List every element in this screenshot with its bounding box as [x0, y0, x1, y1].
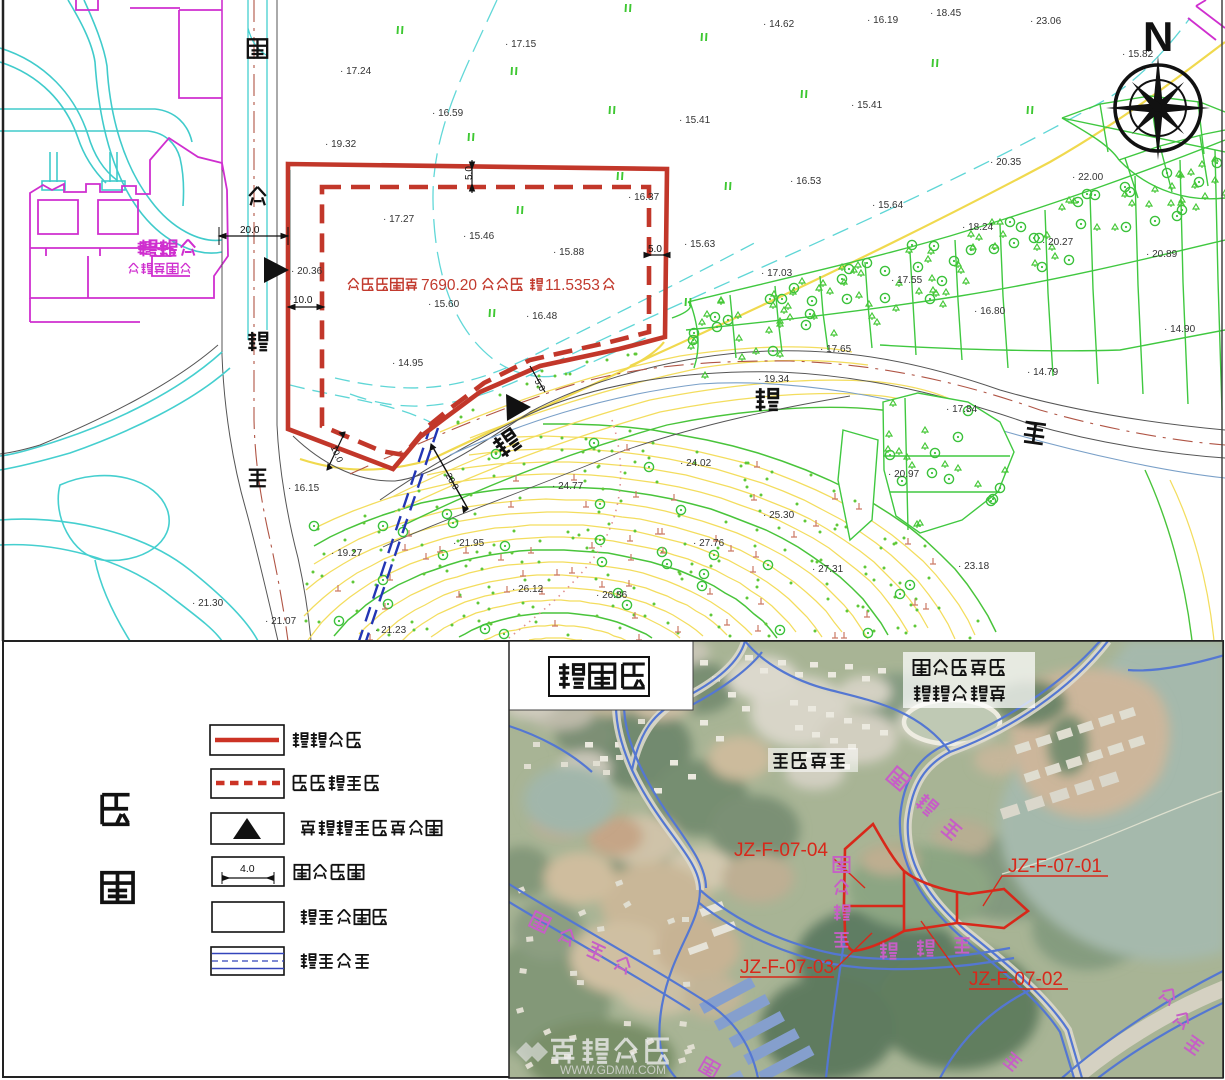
svg-text:· 27.76: · 27.76 [693, 538, 725, 549]
svg-text:· 16.48: · 16.48 [526, 311, 558, 322]
svg-text:· 15.63: · 15.63 [684, 239, 716, 250]
svg-text:4.0: 4.0 [240, 863, 255, 875]
svg-text:· 21.95: · 21.95 [453, 538, 485, 549]
svg-text:11.5353: 11.5353 [545, 277, 600, 294]
svg-text:· 21.07: · 21.07 [265, 616, 297, 627]
svg-text:· 16.53: · 16.53 [790, 176, 822, 187]
svg-text:· 20.89: · 20.89 [1146, 249, 1178, 260]
svg-text:· 25.30: · 25.30 [763, 510, 795, 521]
svg-text:· 17.27: · 17.27 [383, 214, 415, 225]
svg-text:· 17.55: · 17.55 [891, 275, 923, 286]
svg-text:· 17.24: · 17.24 [340, 66, 372, 77]
svg-text:· 22.00: · 22.00 [1072, 172, 1104, 183]
svg-text:· 14.90: · 14.90 [1164, 324, 1196, 335]
svg-text:5.0: 5.0 [464, 166, 475, 180]
svg-text:· 15.41: · 15.41 [851, 100, 883, 111]
svg-text:· 20.36: · 20.36 [291, 266, 323, 277]
svg-text:· 15.60: · 15.60 [428, 299, 460, 310]
svg-text:· 16.19: · 16.19 [867, 15, 899, 26]
svg-text:· 15.46: · 15.46 [463, 231, 495, 242]
svg-text:7690.20: 7690.20 [421, 277, 477, 294]
svg-text:· 20.35: · 20.35 [990, 157, 1022, 168]
svg-text:JZ-F-07-02: JZ-F-07-02 [969, 969, 1063, 990]
svg-text:· 14.62: · 14.62 [763, 19, 795, 30]
svg-text:· 26.86: · 26.86 [596, 590, 628, 601]
svg-text:· 24.77: · 24.77 [552, 481, 584, 492]
svg-text:· 17.65: · 17.65 [820, 344, 852, 355]
svg-text:· 15.41: · 15.41 [679, 115, 711, 126]
svg-text:· 18.45: · 18.45 [930, 8, 962, 19]
svg-text:· 15.64: · 15.64 [872, 200, 904, 211]
svg-text:· 19.32: · 19.32 [325, 139, 357, 150]
svg-text:· 18.24: · 18.24 [962, 222, 994, 233]
svg-text:· 16.80: · 16.80 [974, 306, 1006, 317]
svg-text:· 21.23: · 21.23 [375, 625, 407, 636]
svg-text:· 27.31: · 27.31 [812, 564, 844, 575]
svg-text:· 16.59: · 16.59 [432, 108, 464, 119]
svg-text:· 23.06: · 23.06 [1030, 16, 1062, 27]
svg-text:· 23.18: · 23.18 [958, 561, 990, 572]
svg-text:· 17.84: · 17.84 [946, 404, 978, 415]
svg-text:· 26.12: · 26.12 [512, 584, 544, 595]
svg-text:WWW.GDMM.COM: WWW.GDMM.COM [560, 1063, 666, 1077]
svg-text:N: N [1143, 13, 1173, 60]
svg-text:35: 35 [153, 239, 176, 262]
svg-text:· 16.15: · 16.15 [288, 483, 320, 494]
svg-text:· 14.79: · 14.79 [1027, 367, 1059, 378]
svg-text:· 19.34: · 19.34 [758, 374, 790, 385]
svg-text:JZ-F-07-04: JZ-F-07-04 [734, 840, 828, 861]
svg-text:JZ-F-07-01: JZ-F-07-01 [1008, 856, 1102, 877]
svg-text:· 16.37: · 16.37 [628, 192, 660, 203]
svg-text:JZ-F-07-03: JZ-F-07-03 [740, 957, 834, 978]
svg-text:· 17.15: · 17.15 [505, 39, 537, 50]
svg-text:· 21.30: · 21.30 [192, 598, 224, 609]
svg-text:20.0: 20.0 [240, 225, 260, 236]
svg-text:· 19.27: · 19.27 [331, 548, 363, 559]
svg-text:10.0: 10.0 [293, 295, 313, 306]
svg-text:· 20.27: · 20.27 [1042, 237, 1074, 248]
svg-text:· 15.88: · 15.88 [553, 247, 585, 258]
svg-text:· 14.95: · 14.95 [392, 358, 424, 369]
svg-text:· 20.97: · 20.97 [888, 469, 920, 480]
svg-text:· 17.03: · 17.03 [761, 268, 793, 279]
svg-text:5.0: 5.0 [648, 244, 662, 255]
svg-text:· 24.02: · 24.02 [680, 458, 712, 469]
